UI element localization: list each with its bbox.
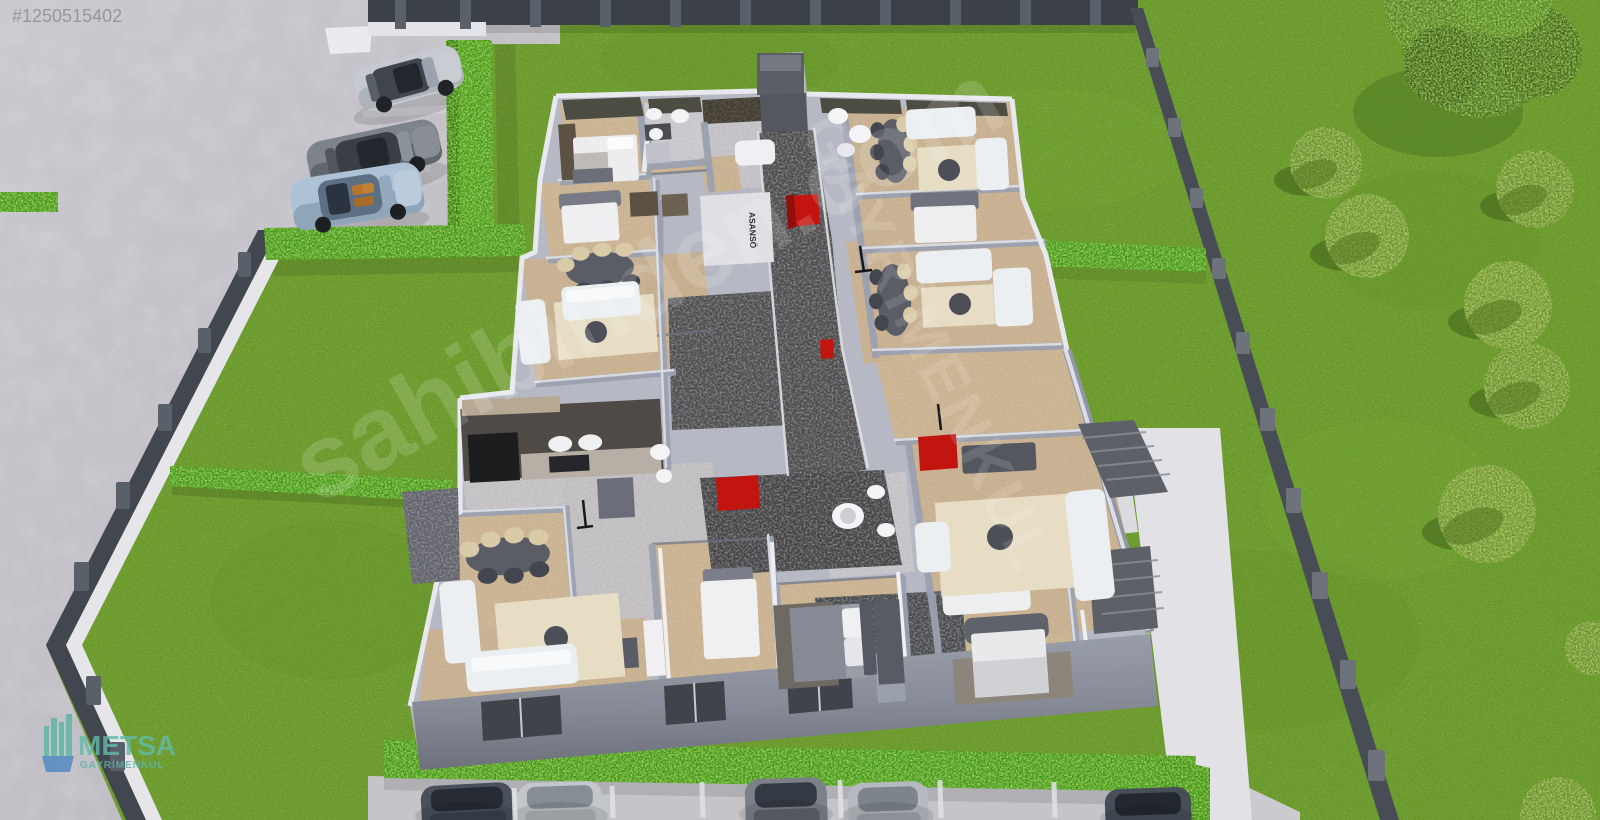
svg-text:METSA: METSA — [78, 730, 176, 761]
svg-text:#1250515402: #1250515402 — [12, 6, 122, 26]
svg-text:GAYRİMENKUL: GAYRİMENKUL — [80, 758, 165, 771]
